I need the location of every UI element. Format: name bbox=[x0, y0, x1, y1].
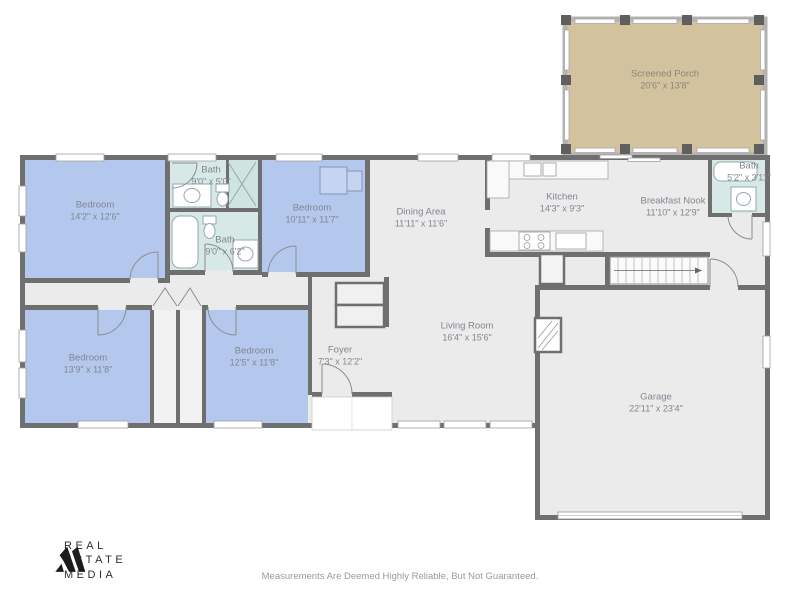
entry-stoop bbox=[312, 397, 392, 430]
stairs bbox=[610, 257, 708, 284]
pantry bbox=[540, 254, 564, 284]
disclaimer-text: Measurements Are Deemed Highly Reliable,… bbox=[0, 571, 800, 582]
garage-door bbox=[558, 512, 742, 519]
room-label-living-room: Living Room16'4" x 15'6" bbox=[441, 320, 494, 343]
dishwasher bbox=[556, 233, 586, 249]
room-label-bedroom-2: Bedroom10'11" x 11'7" bbox=[285, 202, 338, 225]
furniture bbox=[320, 167, 362, 194]
room-label-bath-1: Bath9'0" x 5'0" bbox=[191, 164, 230, 187]
foyer-closets bbox=[336, 283, 384, 327]
bedroom2-desk bbox=[320, 167, 347, 194]
room-label-bedroom-1: Bedroom14'2" x 12'6" bbox=[70, 199, 119, 222]
fireplace bbox=[535, 318, 561, 352]
room-label-kitchen: Kitchen14'3" x 9'3" bbox=[540, 191, 584, 214]
room-label-bedroom-4: Bedroom12'5" x 11'8" bbox=[230, 345, 279, 368]
bath2-tub bbox=[172, 216, 198, 268]
room-label-breakfast-nook: Breakfast Nook11'10" x 12'9" bbox=[641, 195, 706, 218]
bath2-toilet bbox=[203, 216, 216, 224]
room-label-garage: Garage22'11" x 23'4" bbox=[629, 391, 683, 414]
room-label-bedroom-3: Bedroom13'9" x 11'8" bbox=[64, 352, 113, 375]
floor-plan: Screened Porch20'6" x 13'8" Bedroom14'2"… bbox=[0, 0, 800, 600]
room-label-foyer: Foyer7'3" x 12'2" bbox=[318, 344, 362, 367]
closet-2-floor bbox=[180, 310, 202, 423]
kitchen-sink bbox=[524, 163, 541, 176]
closet-1-floor bbox=[154, 310, 176, 423]
room-label-dining-area: Dining Area11'11" x 11'6" bbox=[395, 206, 447, 229]
room-label-screened-porch: Screened Porch20'6" x 13'8" bbox=[631, 68, 699, 91]
room-label-bath-3: Bath5'2" x 3'11" bbox=[727, 160, 771, 183]
shower-floor bbox=[228, 160, 258, 208]
nook-door-gap bbox=[710, 285, 738, 290]
room-label-bath-2: Bath9'0" x 6'2" bbox=[205, 234, 244, 257]
stove bbox=[519, 232, 550, 250]
